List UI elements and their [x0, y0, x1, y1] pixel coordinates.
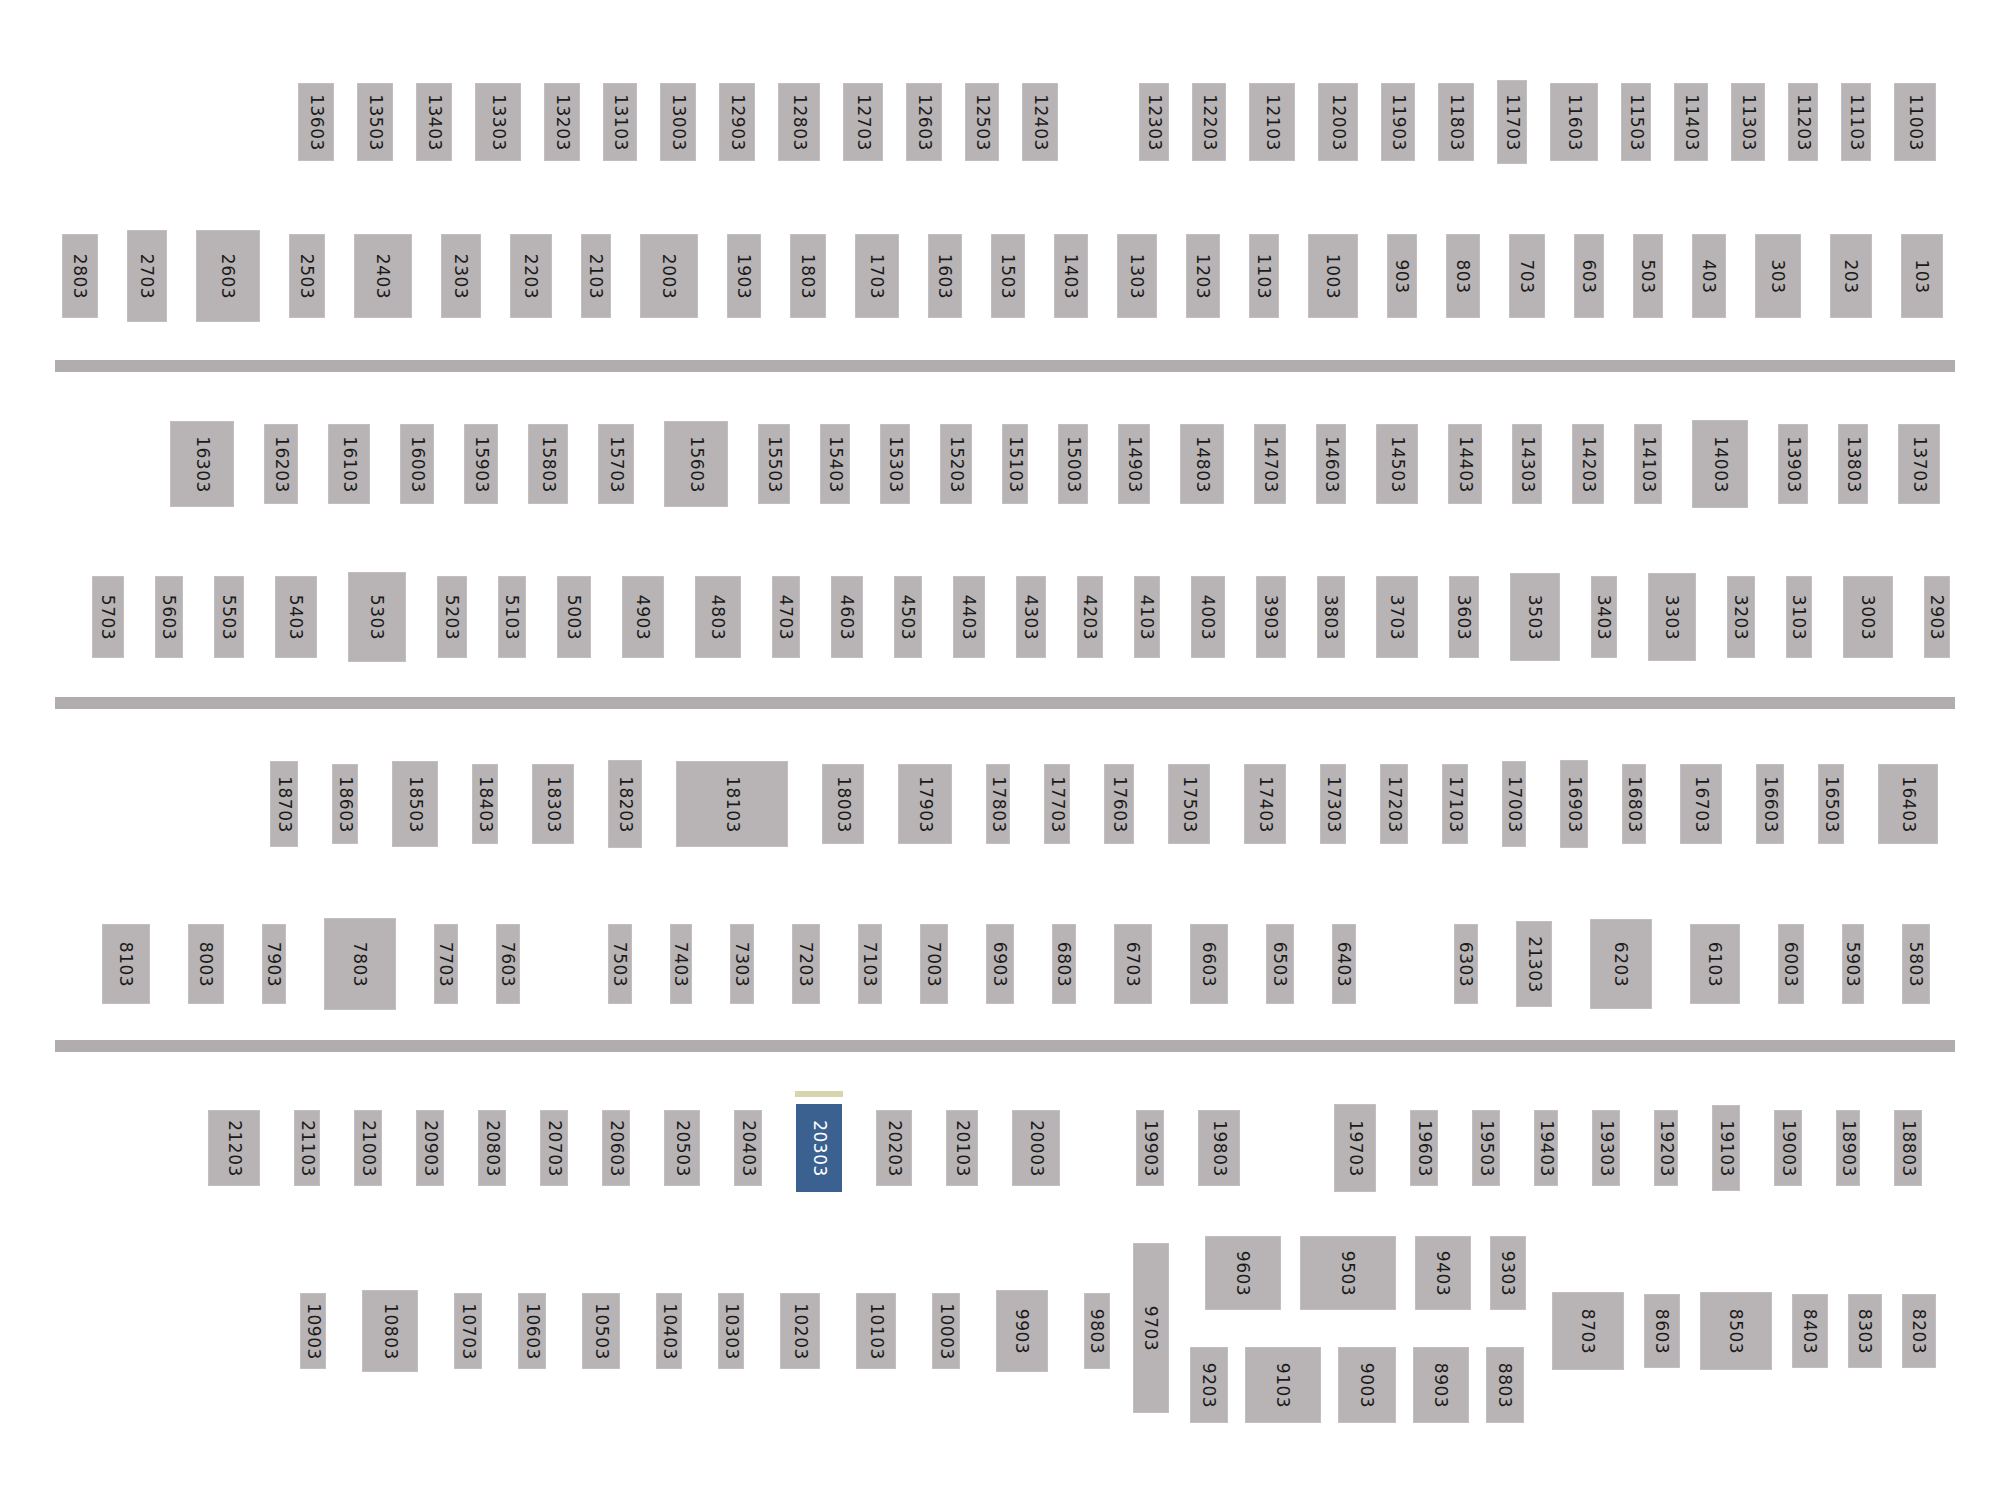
lot-number: 10803 — [382, 1303, 399, 1360]
lot-block[interactable]: 8103 — [102, 924, 150, 1004]
lot-number: 15903 — [473, 436, 490, 493]
lot-block[interactable]: 2403 — [354, 234, 412, 318]
lot-number: 7703 — [438, 941, 455, 986]
lot-block[interactable]: 12503 — [965, 83, 999, 161]
lot-block[interactable]: 15703 — [598, 424, 634, 504]
lot-block[interactable]: 19203 — [1654, 1110, 1678, 1186]
lot-block[interactable]: 8903 — [1413, 1347, 1469, 1423]
lot-block[interactable]: 3003 — [1843, 576, 1893, 658]
lot-block[interactable]: 6303 — [1454, 924, 1478, 1004]
lot-block[interactable]: 15503 — [758, 424, 790, 504]
lot-block[interactable]: 2703 — [127, 230, 167, 322]
lot-block[interactable]: 19303 — [1592, 1110, 1620, 1186]
lot-block[interactable]: 5403 — [275, 576, 317, 658]
lot-block[interactable]: 18603 — [332, 764, 358, 844]
lot-number: 4603 — [839, 594, 856, 639]
lot-number: 12003 — [1330, 94, 1347, 151]
lot-block[interactable]: 6203 — [1590, 919, 1652, 1009]
lot-block[interactable]: 17203 — [1380, 764, 1408, 844]
lot-block[interactable]: 503 — [1633, 234, 1663, 318]
lot-block[interactable]: 6603 — [1190, 924, 1228, 1004]
lot-block[interactable]: 7903 — [262, 924, 286, 1004]
lot-block[interactable]: 20803 — [478, 1110, 506, 1186]
lot-block[interactable]: 403 — [1692, 234, 1726, 318]
lot-block[interactable]: 20203 — [876, 1110, 912, 1186]
lot-block[interactable]: 10303 — [718, 1293, 744, 1369]
lot-block[interactable]: 9903 — [996, 1290, 1048, 1372]
lot-number: 4703 — [778, 594, 795, 639]
lot-block[interactable]: 14703 — [1254, 424, 1286, 504]
lot-block[interactable]: 14903 — [1118, 424, 1150, 504]
lot-block[interactable]: 10903 — [300, 1293, 326, 1369]
lot-row-7: 2120321103210032090320803207032060320503… — [208, 1104, 1922, 1192]
lot-block[interactable]: 803 — [1446, 234, 1480, 318]
lot-block[interactable]: 16503 — [1818, 764, 1844, 844]
lot-block[interactable]: 1703 — [855, 234, 899, 318]
lot-number: 12403 — [1032, 94, 1049, 151]
lot-block[interactable]: 17603 — [1104, 764, 1134, 844]
lot-block[interactable]: 8503 — [1700, 1292, 1772, 1370]
lot-number: 4903 — [635, 594, 652, 639]
lot-block[interactable]: 11203 — [1788, 83, 1818, 161]
lot-row-1: 1360313503134031330313203131031300312903… — [298, 80, 1936, 164]
lot-number: 11103 — [1848, 94, 1865, 151]
lot-number: 5303 — [368, 594, 385, 639]
lot-block[interactable]: 17303 — [1320, 764, 1346, 844]
lot-block[interactable]: 4803 — [695, 576, 741, 658]
lot-block[interactable]: 4903 — [622, 576, 664, 658]
lot-block[interactable]: 6703 — [1114, 924, 1152, 1004]
lot-block[interactable]: 20403 — [734, 1110, 762, 1186]
lot-block[interactable]: 16603 — [1756, 764, 1784, 844]
lot-block[interactable]: 12403 — [1022, 83, 1058, 161]
lot-block[interactable]: 17103 — [1442, 764, 1468, 844]
lot-block[interactable]: 3603 — [1449, 576, 1479, 658]
lot-block[interactable]: 13903 — [1778, 424, 1808, 504]
lot-block[interactable]: 20903 — [416, 1110, 444, 1186]
lot-block[interactable]: 18503 — [392, 761, 438, 847]
lot-block[interactable]: 17003 — [1502, 761, 1526, 847]
lot-number: 7303 — [734, 941, 751, 986]
lot-block[interactable]: 17703 — [1044, 764, 1070, 844]
lot-block[interactable]: 18903 — [1836, 1110, 1860, 1186]
lot-block[interactable]: 7203 — [792, 924, 820, 1004]
lot-block[interactable]: 10703 — [454, 1293, 482, 1369]
lot-number: 10203 — [792, 1303, 809, 1360]
lot-row-8-left: 1090310803107031060310503104031030310203… — [300, 1290, 1110, 1372]
lot-number: 19803 — [1211, 1120, 1228, 1177]
lot-block[interactable]: 3803 — [1317, 576, 1345, 658]
lot-block[interactable]: 6503 — [1266, 924, 1294, 1004]
lot-block[interactable]: 6403 — [1332, 924, 1356, 1004]
lot-block[interactable]: 18703 — [270, 761, 298, 847]
lot-block[interactable]: 6003 — [1778, 924, 1804, 1004]
lot-number: 8803 — [1497, 1362, 1514, 1407]
lot-number: 2803 — [72, 253, 89, 298]
lot-block[interactable]: 8803 — [1486, 1347, 1524, 1423]
lot-block[interactable]: 7503 — [608, 924, 632, 1004]
lot-block[interactable]: 15303 — [880, 424, 910, 504]
lot-block[interactable]: 20503 — [664, 1110, 700, 1186]
lot-block[interactable]: 10203 — [780, 1293, 820, 1369]
lot-block[interactable]: 903 — [1387, 234, 1417, 318]
lot-block[interactable]: 19703 — [1334, 1104, 1376, 1192]
lot-block[interactable]: 703 — [1509, 234, 1545, 318]
lot-number: 4303 — [1023, 594, 1040, 639]
lot-block[interactable]: 12203 — [1192, 83, 1226, 161]
lot-block[interactable]: 8703 — [1552, 1292, 1624, 1370]
lot-block[interactable]: 2903 — [1924, 576, 1950, 658]
lot-block[interactable]: 3103 — [1786, 576, 1812, 658]
lot-number: 16903 — [1566, 776, 1583, 833]
lot-block[interactable]: 13703 — [1898, 424, 1940, 504]
lot-block[interactable]: 14103 — [1634, 424, 1662, 504]
lot-block[interactable]: 15403 — [820, 424, 850, 504]
lot-block[interactable]: 5803 — [1902, 924, 1930, 1004]
lot-number: 15103 — [1007, 436, 1024, 493]
lot-number: 17503 — [1181, 776, 1198, 833]
lot-block[interactable]: 7803 — [324, 918, 396, 1010]
lot-number: 13903 — [1785, 436, 1802, 493]
lot-block[interactable]: 1103 — [1249, 234, 1279, 318]
lot-number: 15003 — [1065, 436, 1082, 493]
lot-number: 11003 — [1907, 94, 1924, 151]
lot-number: 803 — [1455, 259, 1472, 293]
lot-number: 6803 — [1056, 941, 1073, 986]
lot-number: 8003 — [198, 941, 215, 986]
lot-block[interactable]: 2503 — [289, 234, 325, 318]
lot-block[interactable]: 12103 — [1249, 83, 1295, 161]
lot-number: 14303 — [1519, 436, 1536, 493]
lot-block[interactable]: 18403 — [472, 764, 498, 844]
lot-block[interactable]: 2103 — [581, 234, 611, 318]
lot-number: 5803 — [1908, 941, 1925, 986]
lot-block[interactable]: 17803 — [986, 764, 1010, 844]
section-divider-2 — [55, 697, 1955, 709]
lot-number: 5003 — [566, 594, 583, 639]
lot-block[interactable]: 15203 — [940, 424, 972, 504]
lot-block[interactable]: 8003 — [188, 924, 224, 1004]
lot-block[interactable]: 16003 — [400, 424, 434, 504]
lot-block[interactable]: 2603 — [196, 230, 260, 322]
lot-block[interactable]: 603 — [1574, 234, 1604, 318]
lot-block[interactable]: 7703 — [434, 924, 458, 1004]
lot-block[interactable]: 15603 — [664, 421, 728, 507]
lot-block[interactable]: 19103 — [1712, 1105, 1740, 1191]
lot-block[interactable]: 21103 — [294, 1110, 320, 1186]
lot-number: 3103 — [1791, 594, 1808, 639]
lot-block[interactable]: 18003 — [822, 764, 864, 844]
lot-block[interactable]: 4703 — [772, 576, 800, 658]
lot-block[interactable]: 19003 — [1774, 1110, 1802, 1186]
lot-block[interactable]: 4503 — [894, 576, 922, 658]
lot-number: 11803 — [1448, 94, 1465, 151]
lot-block[interactable]: 18203 — [608, 760, 642, 848]
lot-block[interactable]: 12803 — [778, 83, 820, 161]
lot-number: 2903 — [1929, 594, 1946, 639]
lot-number: 21003 — [360, 1120, 377, 1177]
lot-block[interactable]: 7003 — [920, 924, 948, 1004]
lot-block[interactable]: 2003 — [640, 234, 698, 318]
lot-block[interactable]: 1603 — [928, 234, 962, 318]
lot-block[interactable]: 19603 — [1410, 1110, 1438, 1186]
lot-block[interactable]: 1903 — [727, 234, 761, 318]
lot-number: 18303 — [545, 776, 562, 833]
lot-block[interactable]: 14603 — [1316, 424, 1346, 504]
lot-block[interactable]: 18103 — [676, 761, 788, 847]
lot-block[interactable]: 16803 — [1622, 764, 1646, 844]
lot-number: 19203 — [1658, 1120, 1675, 1177]
lot-number: 7003 — [926, 941, 943, 986]
lot-block[interactable]: 9503 — [1300, 1236, 1396, 1310]
lot-block[interactable]: 7303 — [730, 924, 754, 1004]
lot-block[interactable]: 16703 — [1680, 764, 1722, 844]
lot-number: 17403 — [1257, 776, 1274, 833]
lot-number: 13203 — [554, 94, 571, 151]
lot-number: 19903 — [1142, 1120, 1159, 1177]
lot-block[interactable]: 20603 — [602, 1110, 630, 1186]
lot-block[interactable]: 5203 — [437, 576, 467, 658]
lot-block[interactable]: 4603 — [831, 576, 863, 658]
lot-block[interactable]: 16903 — [1560, 760, 1588, 848]
lot-block[interactable]: 3403 — [1591, 576, 1617, 658]
lot-block[interactable]: 11303 — [1731, 83, 1765, 161]
lot-number: 12803 — [791, 94, 808, 151]
lot-block[interactable]: 10603 — [518, 1293, 546, 1369]
lot-block[interactable]: 14803 — [1180, 424, 1224, 504]
lot-block[interactable]: 3903 — [1256, 576, 1286, 658]
lot-block[interactable]: 20703 — [540, 1110, 568, 1186]
lot-number: 16103 — [341, 436, 358, 493]
lot-number: 7903 — [266, 941, 283, 986]
lot-block[interactable]: 4203 — [1077, 576, 1103, 658]
lot-block[interactable]: 20003 — [1012, 1110, 1060, 1186]
lot-block[interactable]: 4303 — [1016, 576, 1046, 658]
lot-block[interactable]: 2303 — [441, 234, 481, 318]
lot-block[interactable]: 4003 — [1191, 576, 1225, 658]
lot-block[interactable]: 9803 — [1084, 1293, 1110, 1369]
lot-number: 14903 — [1126, 436, 1143, 493]
lot-number: 10003 — [938, 1303, 955, 1360]
lot-block[interactable]: 9403 — [1415, 1236, 1471, 1310]
lot-block[interactable]: 1303 — [1117, 234, 1157, 318]
lot-block[interactable]: 15103 — [1002, 424, 1028, 504]
lot-block[interactable]: 1503 — [991, 234, 1025, 318]
lot-map: 1360313503134031330313203131031300312903… — [0, 0, 2000, 1500]
lot-block[interactable]: 5303 — [348, 572, 406, 662]
lot-block[interactable]: 21203 — [208, 1110, 260, 1186]
lot-block[interactable]: 11003 — [1894, 83, 1936, 161]
lot-block[interactable]: 14003 — [1692, 420, 1748, 508]
lot-block[interactable]: 10403 — [656, 1293, 682, 1369]
lot-block[interactable]: 8203 — [1902, 1294, 1936, 1368]
lot-block[interactable]: 5103 — [498, 576, 526, 658]
lot-block[interactable]: 12003 — [1318, 83, 1358, 161]
lot-number: 18103 — [724, 776, 741, 833]
lot-block[interactable]: 17403 — [1244, 764, 1286, 844]
lot-block[interactable]: 17503 — [1168, 764, 1210, 844]
lot-number: 5603 — [161, 594, 178, 639]
lot-number: 3803 — [1323, 594, 1340, 639]
lot-block[interactable]: 9703 — [1133, 1243, 1169, 1413]
lot-block[interactable]: 10803 — [362, 1290, 418, 1372]
lot-number: 16403 — [1900, 776, 1917, 833]
lot-block[interactable]: 2203 — [510, 234, 552, 318]
lot-block[interactable]: 11103 — [1841, 83, 1871, 161]
lot-block[interactable]: 12903 — [719, 83, 755, 161]
lot-block[interactable]: 18803 — [1894, 1110, 1922, 1186]
lot-number: 20803 — [484, 1120, 501, 1177]
lot-number: 2003 — [660, 253, 677, 298]
lot-number: 12203 — [1201, 94, 1218, 151]
lot-block[interactable]: 1003 — [1308, 234, 1358, 318]
lot-number: 21103 — [299, 1120, 316, 1177]
lot-number: 12303 — [1146, 94, 1163, 151]
lot-block[interactable]: 6103 — [1690, 924, 1740, 1004]
lot-number: 11203 — [1795, 94, 1812, 151]
lot-number: 20703 — [546, 1120, 563, 1177]
lot-block[interactable]: 1803 — [790, 234, 826, 318]
lot-number: 18703 — [276, 776, 293, 833]
lot-block[interactable]: 19503 — [1472, 1110, 1500, 1186]
lot-block[interactable]: 3703 — [1376, 576, 1418, 658]
lot-block[interactable]: 13103 — [603, 83, 637, 161]
lot-number: 10603 — [524, 1303, 541, 1360]
lot-block[interactable]: 12703 — [843, 83, 883, 161]
lot-block[interactable]: 14303 — [1512, 424, 1542, 504]
lot-block[interactable]: 13303 — [475, 83, 521, 161]
lot-number: 15603 — [688, 436, 705, 493]
lot-block[interactable]: 11403 — [1674, 83, 1708, 161]
lot-block[interactable]: 21303 — [1516, 921, 1552, 1007]
lot-number: 12903 — [729, 94, 746, 151]
lot-number: 18803 — [1900, 1120, 1917, 1177]
lot-number: 6003 — [1783, 941, 1800, 986]
lot-block[interactable]: 7603 — [496, 924, 520, 1004]
lot-block[interactable]: 6903 — [986, 924, 1014, 1004]
lot-block[interactable]: 16403 — [1878, 764, 1938, 844]
lot-block[interactable]: 11703 — [1497, 80, 1527, 164]
lot-number: 11403 — [1683, 94, 1700, 151]
lot-block[interactable]: 5703 — [92, 576, 124, 658]
lot-row-3: 1630316203161031600315903158031570315603… — [170, 420, 1940, 508]
lot-block[interactable]: 21003 — [354, 1110, 382, 1186]
lot-number: 9703 — [1143, 1305, 1160, 1350]
lot-block[interactable]: 9203 — [1190, 1347, 1228, 1423]
lot-block[interactable]: 16103 — [328, 424, 370, 504]
lot-block[interactable]: 2803 — [62, 234, 98, 318]
lot-block[interactable]: 8403 — [1792, 1294, 1828, 1368]
lot-block[interactable]: 10003 — [932, 1293, 960, 1369]
lot-block[interactable]: 5503 — [214, 576, 244, 658]
lot-block[interactable]: 14503 — [1376, 424, 1418, 504]
lot-block-selected[interactable]: 20303 — [796, 1104, 842, 1192]
lot-block[interactable]: 11803 — [1438, 83, 1474, 161]
lot-block[interactable]: 1403 — [1054, 234, 1088, 318]
lot-block[interactable]: 11903 — [1381, 83, 1415, 161]
lot-block[interactable]: 12303 — [1139, 83, 1169, 161]
lot-block[interactable]: 9303 — [1490, 1236, 1526, 1310]
lot-number: 19603 — [1416, 1120, 1433, 1177]
lot-block[interactable]: 14403 — [1448, 424, 1482, 504]
lot-block[interactable]: 6803 — [1052, 924, 1076, 1004]
lot-number: 11303 — [1740, 94, 1757, 151]
lot-number: 16303 — [194, 436, 211, 493]
lot-number: 2403 — [374, 253, 391, 298]
lot-number: 7403 — [673, 941, 690, 986]
lot-block[interactable]: 3503 — [1510, 573, 1560, 661]
lot-number: 15703 — [608, 436, 625, 493]
lot-block[interactable]: 4103 — [1134, 576, 1160, 658]
lot-block[interactable]: 203 — [1830, 234, 1872, 318]
lot-block[interactable]: 9103 — [1245, 1347, 1321, 1423]
lot-block[interactable]: 20103 — [946, 1110, 978, 1186]
lot-block[interactable]: 14203 — [1572, 424, 1604, 504]
lot-number: 1703 — [869, 253, 886, 298]
lot-block[interactable]: 1203 — [1186, 234, 1220, 318]
lot-number: 3703 — [1389, 594, 1406, 639]
lot-number: 703 — [1518, 259, 1535, 293]
lot-block[interactable]: 13403 — [416, 83, 452, 161]
lot-block[interactable]: 11603 — [1550, 83, 1598, 161]
lot-block[interactable]: 13603 — [298, 83, 334, 161]
lot-number: 13003 — [670, 94, 687, 151]
lot-block[interactable]: 13503 — [357, 83, 393, 161]
lot-number: 4003 — [1200, 594, 1217, 639]
lot-block[interactable]: 10103 — [856, 1293, 896, 1369]
lot-block[interactable]: 5603 — [155, 576, 183, 658]
lot-number: 5703 — [100, 594, 117, 639]
lot-block[interactable]: 9603 — [1205, 1236, 1281, 1310]
lot-block[interactable]: 15903 — [464, 424, 498, 504]
lot-block[interactable]: 16203 — [264, 424, 298, 504]
lot-block[interactable]: 8603 — [1644, 1294, 1680, 1368]
lot-block[interactable]: 19903 — [1136, 1110, 1164, 1186]
lot-block[interactable]: 19803 — [1198, 1110, 1240, 1186]
lot-number: 1803 — [800, 253, 817, 298]
lot-number: 3603 — [1456, 594, 1473, 639]
lot-block[interactable]: 13003 — [660, 83, 696, 161]
lot-block[interactable]: 3303 — [1648, 573, 1696, 661]
lot-number: 2303 — [453, 253, 470, 298]
lot-number: 10503 — [593, 1303, 610, 1360]
lot-block[interactable]: 10503 — [582, 1293, 620, 1369]
lot-block[interactable]: 18303 — [532, 764, 574, 844]
lot-block[interactable]: 8303 — [1848, 1294, 1882, 1368]
lot-number: 20403 — [740, 1120, 757, 1177]
lot-block[interactable]: 19403 — [1534, 1110, 1558, 1186]
lot-block[interactable]: 17903 — [898, 764, 952, 844]
lot-block[interactable]: 303 — [1755, 234, 1801, 318]
lot-block[interactable]: 11503 — [1621, 83, 1651, 161]
lot-number: 16603 — [1762, 776, 1779, 833]
lot-block[interactable]: 7403 — [670, 924, 692, 1004]
lot-block[interactable]: 13803 — [1838, 424, 1868, 504]
lot-block[interactable]: 3203 — [1727, 576, 1755, 658]
lot-block[interactable]: 5003 — [557, 576, 591, 658]
lot-block[interactable]: 5903 — [1842, 924, 1864, 1004]
lot-block[interactable]: 13203 — [544, 83, 580, 161]
lot-block[interactable]: 4403 — [953, 576, 985, 658]
lot-block[interactable]: 12603 — [906, 83, 942, 161]
lot-block[interactable]: 103 — [1901, 234, 1943, 318]
lot-block[interactable]: 7103 — [858, 924, 882, 1004]
lot-block[interactable]: 9003 — [1338, 1347, 1396, 1423]
lot-number: 20003 — [1028, 1120, 1045, 1177]
lot-block[interactable]: 16303 — [170, 421, 234, 507]
lot-block[interactable]: 15003 — [1058, 424, 1088, 504]
lot-block[interactable]: 15803 — [528, 424, 568, 504]
